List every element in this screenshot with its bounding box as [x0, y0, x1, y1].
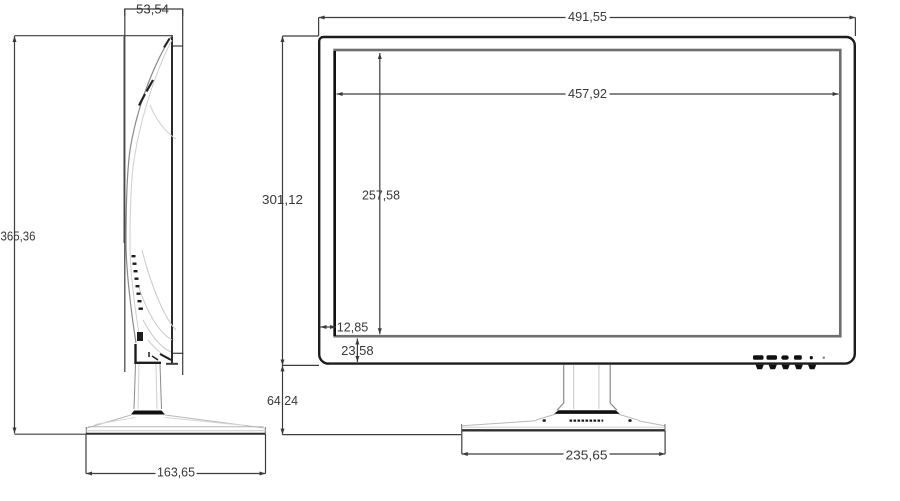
- svg-text:457,92: 457,92: [568, 86, 607, 101]
- svg-text:163,65: 163,65: [157, 465, 195, 480]
- svg-text:12,85: 12,85: [337, 320, 369, 335]
- svg-text:235,65: 235,65: [566, 448, 608, 463]
- svg-text:257,58: 257,58: [362, 188, 400, 203]
- svg-text:301,12: 301,12: [262, 192, 303, 207]
- svg-text:53,54: 53,54: [136, 2, 169, 17]
- svg-text:64,24: 64,24: [267, 393, 298, 408]
- svg-text:365,36: 365,36: [1, 228, 36, 243]
- svg-text:491,55: 491,55: [568, 9, 607, 24]
- svg-text:23,58: 23,58: [341, 343, 374, 358]
